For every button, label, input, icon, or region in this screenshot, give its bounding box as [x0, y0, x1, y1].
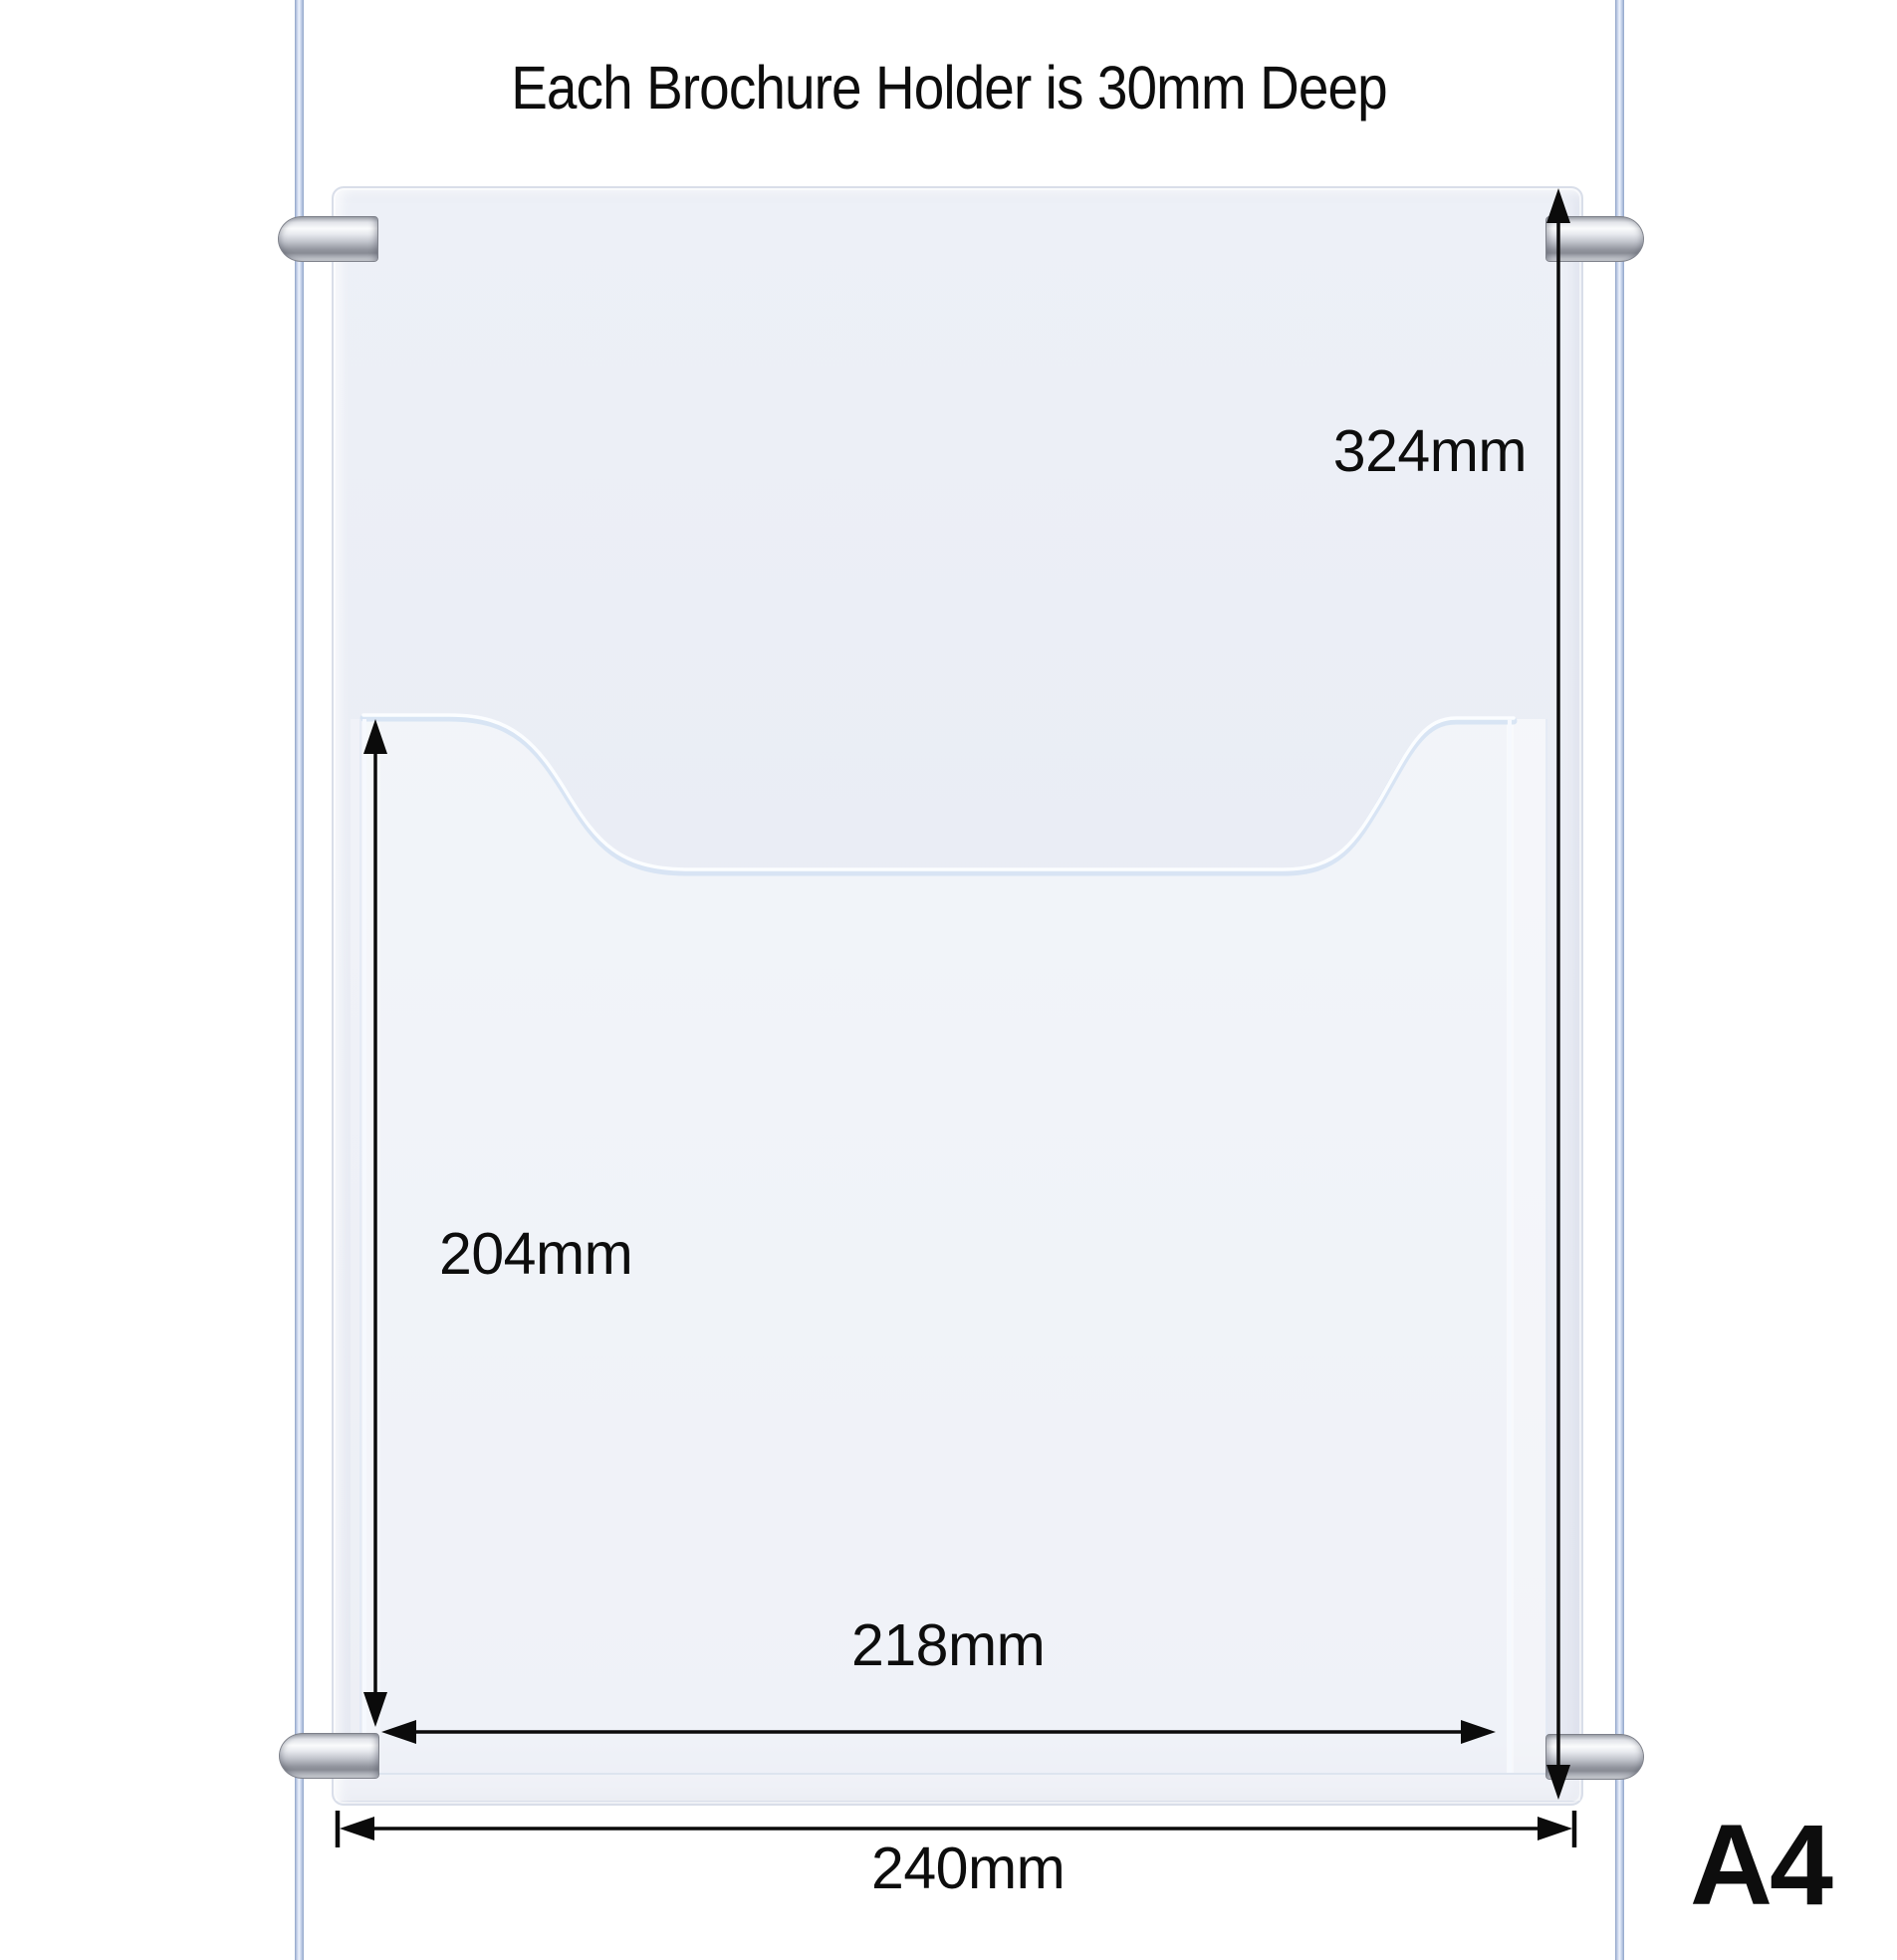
page-title: Each Brochure Holder is 30mm Deep [511, 58, 1387, 119]
paper-size-label: A4 [1690, 1809, 1830, 1923]
overall-height-dimension-label: 324mm [1332, 422, 1527, 481]
pocket-width-dimension-label: 218mm [851, 1616, 1045, 1675]
pocket-width-dimension-arrow [381, 1720, 1496, 1744]
overall-width-dimension-label: 240mm [871, 1839, 1065, 1898]
pocket-height-dimension-label: 204mm [439, 1225, 632, 1284]
brochure-holder-diagram: Each Brochure Holder is 30mm Deep 324mm … [0, 0, 1897, 1960]
overall-height-dimension-arrow [1546, 188, 1570, 1800]
pocket-height-dimension-arrow [363, 719, 387, 1727]
